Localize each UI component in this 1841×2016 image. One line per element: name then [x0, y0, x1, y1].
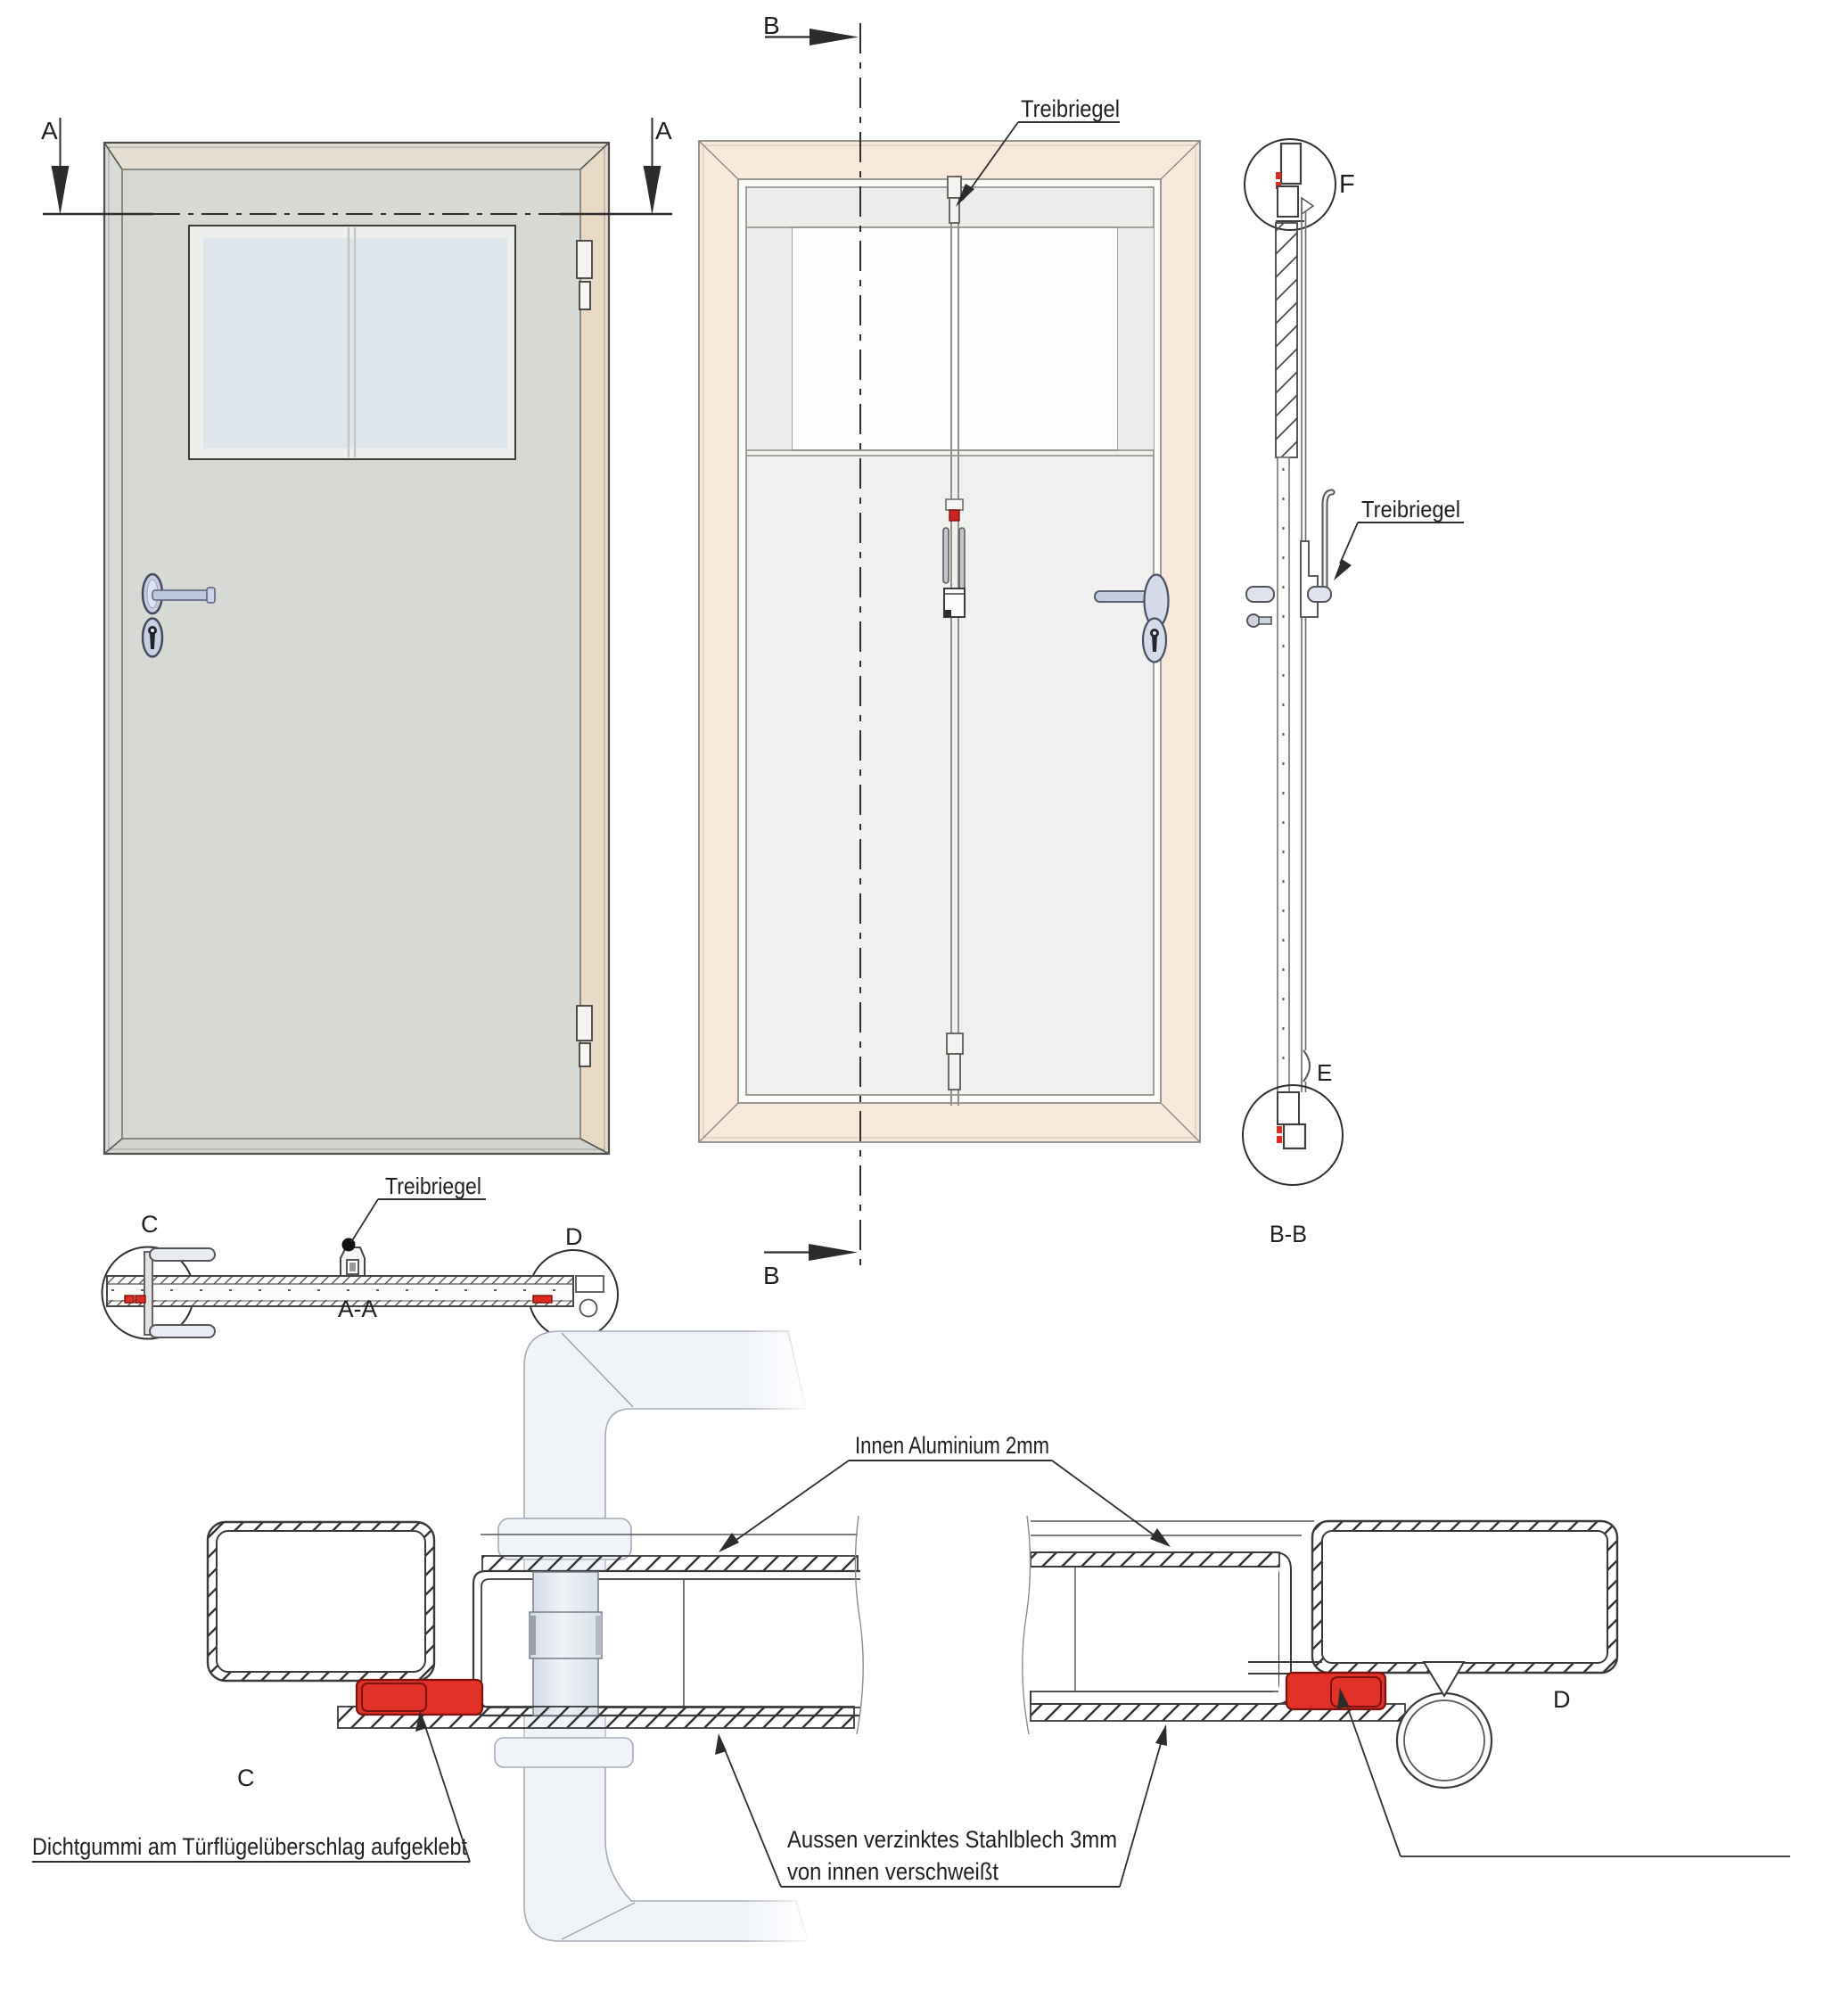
- svg-text:C: C: [141, 1211, 159, 1238]
- svg-text:Aussen verzinktes Stahlblech 3: Aussen verzinktes Stahlblech 3mm: [787, 1826, 1117, 1853]
- svg-text:A: A: [41, 117, 58, 144]
- svg-text:D: D: [565, 1223, 583, 1250]
- svg-text:B: B: [763, 1262, 780, 1289]
- svg-text:Dichtgummi am Türflügelübersch: Dichtgummi am Türflügelüberschlag aufgek…: [32, 1833, 467, 1860]
- svg-text:F: F: [1339, 170, 1355, 199]
- svg-text:Treibriegel: Treibriegel: [1021, 95, 1120, 122]
- svg-text:A-A: A-A: [338, 1296, 377, 1322]
- svg-text:C: C: [237, 1765, 255, 1791]
- svg-text:Innen Aluminium 2mm: Innen Aluminium 2mm: [855, 1432, 1049, 1459]
- svg-text:A: A: [655, 117, 672, 144]
- svg-text:E: E: [1317, 1059, 1332, 1086]
- svg-text:Treibriegel: Treibriegel: [385, 1173, 481, 1199]
- svg-text:Treibriegel: Treibriegel: [1361, 496, 1460, 523]
- svg-text:D: D: [1553, 1686, 1571, 1713]
- svg-text:B-B: B-B: [1270, 1221, 1307, 1247]
- svg-text:von innen verschweißt: von innen verschweißt: [787, 1858, 999, 1885]
- svg-text:B: B: [763, 12, 780, 39]
